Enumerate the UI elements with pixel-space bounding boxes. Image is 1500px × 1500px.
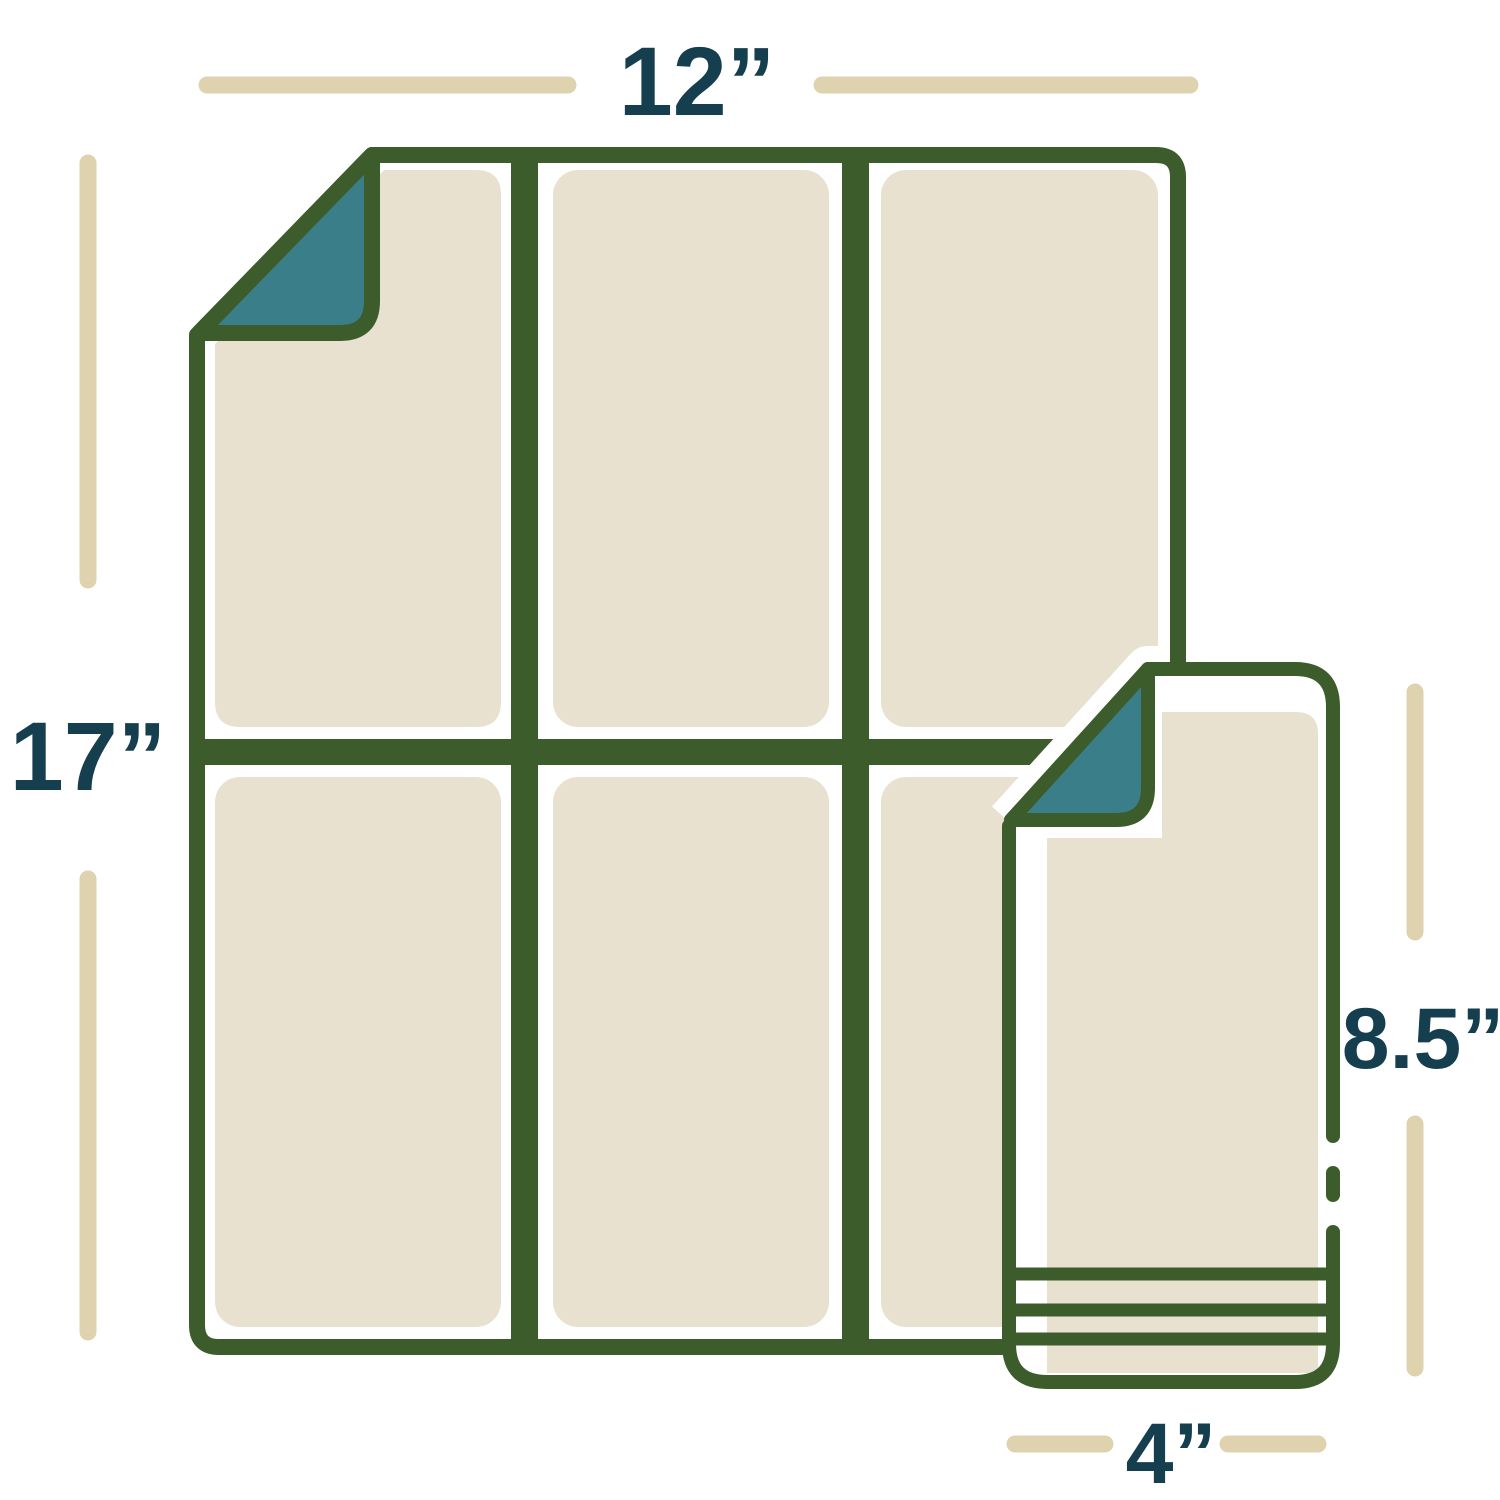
large-sheet-fold-corner-icon xyxy=(199,155,372,333)
large-sheet-height-label: 17” xyxy=(10,702,166,811)
panel-4 xyxy=(215,777,501,1327)
panel-2 xyxy=(553,170,829,727)
sheet-dimension-diagram: 12” 17” 8.5” 4” xyxy=(0,0,1500,1500)
small-sheet-width-label: 4” xyxy=(1126,1406,1217,1500)
large-sheet-width-label: 12” xyxy=(619,27,775,136)
panel-3 xyxy=(881,170,1158,727)
panel-5 xyxy=(553,777,829,1327)
small-sheet xyxy=(1004,669,1333,1382)
small-sheet-height-label: 8.5” xyxy=(1342,991,1500,1087)
diagram-canvas: 12” 17” 8.5” 4” xyxy=(0,0,1500,1500)
